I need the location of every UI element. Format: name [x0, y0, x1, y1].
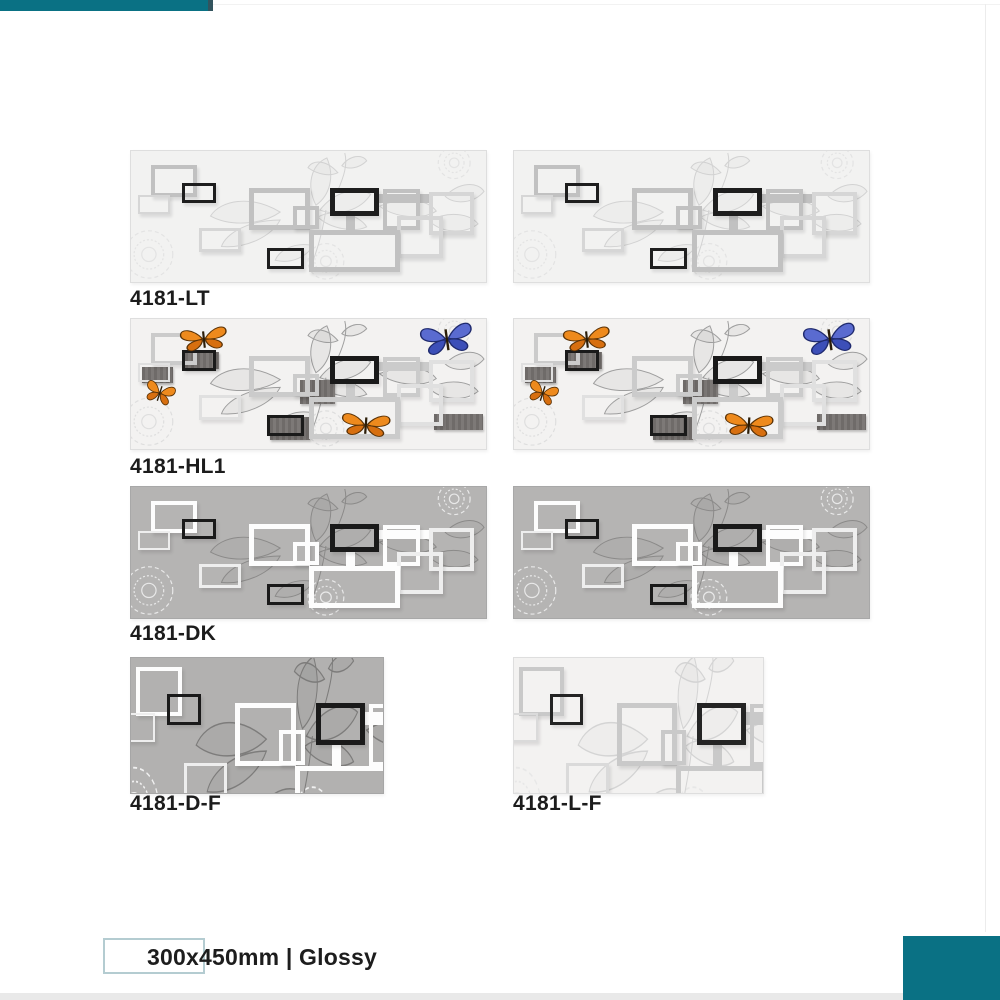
- gray-frame: [676, 766, 764, 794]
- gray-frame: [309, 566, 400, 608]
- black-frame: [713, 356, 762, 383]
- black-frame: [697, 703, 746, 745]
- gray-frame: [676, 374, 702, 396]
- gray-frame: [513, 713, 538, 742]
- gray-frame: [582, 228, 625, 253]
- black-frame: [650, 248, 687, 270]
- gray-frame: [713, 742, 722, 769]
- bottom-right-accent-block: [903, 936, 1000, 1000]
- orange-butterfly: [558, 322, 614, 355]
- orange-butterfly: [175, 322, 231, 355]
- gray-frame: [397, 552, 443, 594]
- tile-code-label-l-f: 4181-L-F: [513, 793, 602, 814]
- gray-frame: [293, 374, 319, 396]
- bottom-edge-strip: [0, 993, 1000, 1000]
- gray-frame: [676, 542, 702, 565]
- black-frame: [330, 356, 379, 383]
- black-frame: [565, 183, 599, 204]
- black-frame: [650, 415, 687, 437]
- tile-code-label-hl1: 4181-HL1: [130, 456, 226, 477]
- gray-frame: [332, 742, 341, 769]
- gray-frame: [521, 195, 553, 214]
- gray-frame: [780, 384, 826, 426]
- black-frame: [650, 584, 687, 606]
- gray-frame: [309, 230, 400, 272]
- gray-frame: [676, 206, 702, 229]
- tile-swatch-4181-lt-right: [513, 150, 870, 283]
- gray-frame: [295, 766, 384, 794]
- gray-frame: [199, 395, 242, 419]
- black-frame: [330, 188, 379, 216]
- gray-frame: [566, 763, 609, 794]
- black-frame: [550, 694, 584, 726]
- tile-code-label-d-f: 4181-D-F: [130, 793, 221, 814]
- gray-frame: [397, 384, 443, 426]
- orange-butterfly: [337, 409, 394, 440]
- gray-frame: [184, 763, 227, 794]
- right-edge-line: [985, 4, 986, 932]
- gray-frame: [138, 531, 170, 550]
- catalog-page: 4181-LT 4181-HL1 4181-DK 4181-D-F 4181-L…: [0, 0, 1000, 1000]
- size-spec-label: 300x450mm | Glossy: [147, 944, 377, 971]
- tile-swatch-4181-dk-right: [513, 486, 870, 619]
- gray-frame: [582, 564, 625, 589]
- top-edge-line: [213, 4, 1000, 5]
- gray-frame: [521, 531, 553, 550]
- tile-swatch-4181-dk-left: [130, 486, 487, 619]
- black-frame: [253, 793, 290, 794]
- gray-frame: [692, 566, 783, 608]
- gray-frame: [279, 730, 305, 765]
- gray-frame: [582, 395, 625, 419]
- tile-swatch-4181-lt-left: [130, 150, 487, 283]
- black-frame: [182, 183, 216, 204]
- gray-frame: [199, 564, 242, 589]
- gray-frame: [293, 542, 319, 565]
- gray-frame: [369, 704, 384, 766]
- gray-frame: [780, 216, 826, 258]
- black-frame: [267, 248, 304, 270]
- black-frame: [713, 188, 762, 216]
- black-frame: [167, 694, 201, 726]
- tile-swatch-4181-l-f: [513, 657, 764, 794]
- tile-swatch-4181-hl1-right: [513, 318, 870, 450]
- black-frame: [330, 524, 379, 552]
- tile-swatch-4181-hl1-left: [130, 318, 487, 450]
- accent-bar-cap: [208, 0, 213, 11]
- gray-frame: [293, 206, 319, 229]
- black-frame: [635, 793, 672, 794]
- gray-frame: [138, 195, 170, 214]
- gray-frame: [750, 704, 764, 766]
- black-frame: [267, 415, 304, 437]
- tile-code-label-dk: 4181-DK: [130, 623, 216, 644]
- tile-swatch-4181-d-f: [130, 657, 384, 794]
- black-frame: [267, 584, 304, 606]
- black-frame: [565, 519, 599, 540]
- tile-code-label-lt: 4181-LT: [130, 288, 210, 309]
- gray-frame: [780, 552, 826, 594]
- gray-frame: [130, 713, 155, 742]
- gray-frame: [661, 730, 687, 765]
- gray-frame: [199, 228, 242, 253]
- black-frame: [182, 519, 216, 540]
- black-frame: [316, 703, 365, 745]
- black-frame: [713, 524, 762, 552]
- gray-frame: [692, 230, 783, 272]
- gray-frame: [397, 216, 443, 258]
- orange-butterfly: [720, 409, 777, 440]
- top-left-accent-bar: [0, 0, 213, 11]
